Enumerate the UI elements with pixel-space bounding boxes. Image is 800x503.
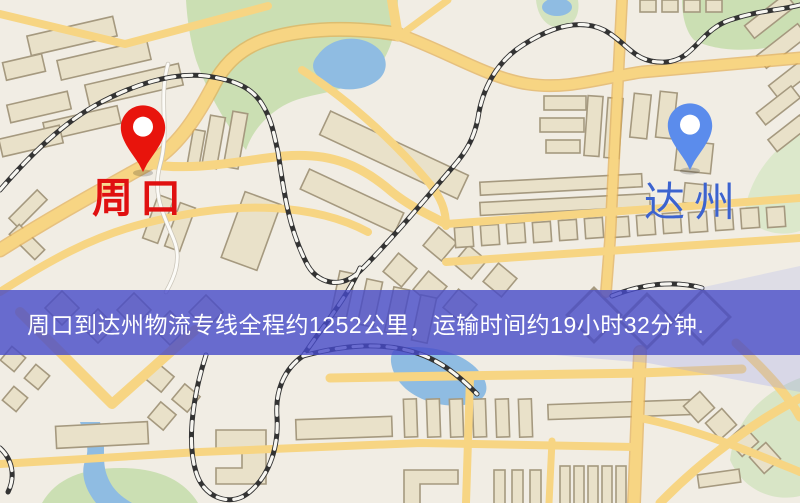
- route-info-text: 周口到达州物流专线全程约1252公里，运输时间约19小时32分钟.: [0, 306, 704, 340]
- origin-city-label: 周口: [92, 178, 188, 219]
- destination-pin-hole: [680, 115, 700, 135]
- route-info-banner: 周口到达州物流专线全程约1252公里，运输时间约19小时32分钟.: [0, 290, 800, 355]
- map-canvas: [0, 0, 800, 503]
- logistics-route-map: 周口 达州 周口到达州物流专线全程约1252公里，运输时间约19小时32分钟.: [0, 0, 800, 503]
- origin-pin-hole: [133, 117, 153, 137]
- destination-city-label: 达州: [644, 182, 744, 223]
